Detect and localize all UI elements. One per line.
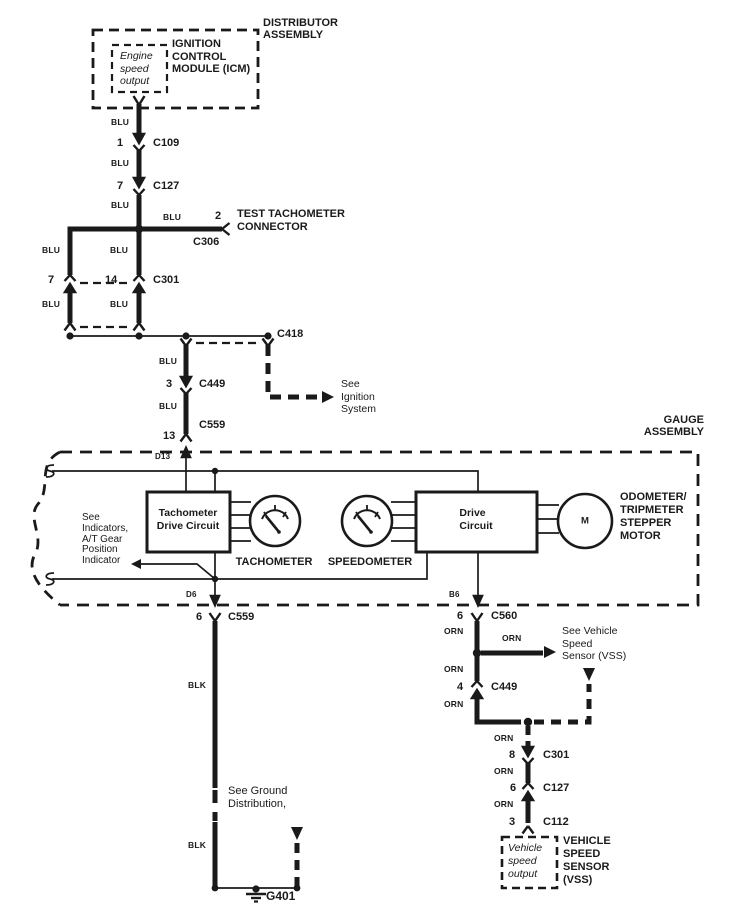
drive-to-motor-links <box>537 505 559 533</box>
connector-c301-right-icon <box>523 747 534 764</box>
junction-bus-c418 <box>264 332 271 339</box>
ground-g401-label: G401 <box>266 889 295 903</box>
tachometer-needle-icon <box>262 505 288 534</box>
indicator-branch-line <box>140 564 215 579</box>
tach-drive-to-gauge-links <box>230 502 251 541</box>
icm-line3: MODULE (ICM) <box>172 63 250 76</box>
stepper-line3: STEPPER <box>620 517 687 530</box>
vss-line2: SPEED <box>563 848 611 861</box>
icm-label: IGNITION CONTROL MODULE (ICM) <box>172 38 250 76</box>
pin-c559-bottom: 6 <box>196 611 202 623</box>
connector-name-c301-left: C301 <box>153 274 179 286</box>
pin-c301-7: 7 <box>48 274 54 286</box>
see-indicators-arrow-icon <box>131 559 141 569</box>
gauge-needle-icons <box>262 505 380 534</box>
wire-color-blk-1: BLK <box>188 680 206 690</box>
pin-c109: 1 <box>117 137 123 149</box>
engine-speed-output-label: Engine speed output <box>120 50 153 88</box>
speedometer-label: SPEEDOMETER <box>328 556 412 568</box>
icm-line1: IGNITION <box>172 38 250 51</box>
wire-color-blu-3: BLU <box>111 200 129 210</box>
speedo-to-drive-links <box>391 502 416 541</box>
drive-circuit-label: Drive Circuit <box>459 507 492 532</box>
vss-line4: (VSS) <box>563 874 611 887</box>
connector-c449-left-icon <box>181 377 192 394</box>
connector-c301-pin14-icon <box>134 275 145 292</box>
connector-c109-icon <box>134 134 145 151</box>
test-tach-line1: TEST TACHOMETER <box>237 208 345 221</box>
speedometer-needle-icon <box>354 505 380 534</box>
wire-color-blu-5: BLU <box>42 245 60 255</box>
pin-c449-left: 3 <box>166 378 172 390</box>
pin-c301-14: 14 <box>105 274 117 286</box>
wiring-diagram: DISTRIBUTOR ASSEMBLY IGNITION CONTROL MO… <box>0 0 747 920</box>
wire-color-blu-8: BLU <box>110 299 128 309</box>
diagram-graphics <box>0 0 747 920</box>
see-ignition-line1: See <box>341 378 376 391</box>
wire-dashed-to-ignition-system <box>268 345 321 397</box>
d13-arrow-icon <box>182 448 190 457</box>
wire-orn-c449-elbow <box>477 698 521 722</box>
connector-name-c449-right: C449 <box>491 681 517 693</box>
junction-bus-2 <box>135 332 142 339</box>
test-tachometer-terminal-icon <box>222 223 230 235</box>
vss-line1: VEHICLE <box>563 835 611 848</box>
junction-test-connector <box>135 225 143 233</box>
vss-return-arrow-icon <box>583 668 595 681</box>
vss-output-line1: Vehicle <box>508 842 542 855</box>
wire-color-blu-4: BLU <box>163 212 181 222</box>
dashed-links <box>80 283 260 343</box>
pin-c127-top: 7 <box>117 180 123 192</box>
pin-c112: 3 <box>509 816 515 828</box>
see-vss-line2: Speed <box>562 638 626 651</box>
connector-name-c301-right: C301 <box>543 749 569 761</box>
junction-vss-return <box>524 718 532 726</box>
wire-color-orn-2: ORN <box>502 633 522 643</box>
wire-color-blu-6: BLU <box>110 245 128 255</box>
see-ignition-arrow-icon <box>322 391 334 403</box>
wire-end-flare-pin7-icon <box>65 323 76 331</box>
connector-name-c306: C306 <box>193 236 219 248</box>
gauge-assembly-label: GAUGE ASSEMBLY <box>600 415 704 438</box>
thin-lines <box>46 336 559 888</box>
wire-color-blu-9: BLU <box>159 356 177 366</box>
vss-output-line2: speed <box>508 855 542 868</box>
drive-line2: Circuit <box>459 520 492 533</box>
icm-output-terminal-icon <box>134 96 145 105</box>
wire-color-blu-2: BLU <box>111 158 129 168</box>
vss-output-line3: output <box>508 868 542 881</box>
wire-color-blu-7: BLU <box>42 299 60 309</box>
wire-start-flare-ignition-icon <box>263 339 274 347</box>
connector-name-c559-top: C559 <box>199 419 225 431</box>
stepper-line4: MOTOR <box>620 530 687 543</box>
pin-c301-right: 8 <box>509 749 515 761</box>
tachometer-drive-circuit-label: Tachometer Drive Circuit <box>148 507 228 532</box>
engine-line1: Engine <box>120 50 153 63</box>
junction-vss-note <box>473 649 481 657</box>
see-ground-note: See Ground Distribution, <box>228 785 287 810</box>
gauge-assembly-box-wavy-edge <box>32 452 60 605</box>
connector-c127-top-icon <box>134 178 145 195</box>
pin-c559-top: 13 <box>163 430 175 442</box>
gauge-top-rail <box>52 471 478 492</box>
wire-color-orn-1: ORN <box>444 626 464 636</box>
ground-return-arrow-icon <box>291 827 303 840</box>
drive-line1: Drive <box>459 507 492 520</box>
tach-drive-line1: Tachometer <box>148 507 228 520</box>
stepper-line2: TRIPMETER <box>620 504 687 517</box>
see-ground-line2: Distribution, <box>228 798 287 811</box>
vss-label: VEHICLE SPEED SENSOR (VSS) <box>563 835 611 887</box>
wire-blu-left-branch <box>70 229 141 275</box>
junction-bus-3 <box>182 332 189 339</box>
connector-c449-right-icon <box>472 681 483 698</box>
connector-c560-icon <box>472 613 483 621</box>
junction-ground-left <box>212 885 219 892</box>
connector-name-c560: C560 <box>491 610 517 622</box>
see-vss-note: See Vehicle Speed Sensor (VSS) <box>562 625 626 663</box>
connector-name-c449-left: C449 <box>199 378 225 390</box>
connector-c112-icon <box>523 826 534 834</box>
tach-drive-line2: Drive Circuit <box>148 520 228 533</box>
distributor-assembly-line1: DISTRIBUTOR <box>263 18 338 30</box>
connector-c559-top-icon <box>181 434 192 442</box>
pin-c560: 6 <box>457 610 463 622</box>
distributor-assembly-line2: ASSEMBLY <box>263 30 338 42</box>
connector-name-c418: C418 <box>277 328 303 340</box>
wire-color-orn-6: ORN <box>494 766 514 776</box>
icm-line2: CONTROL <box>172 51 250 64</box>
connector-name-c112: C112 <box>543 816 569 828</box>
see-ignition-line3: System <box>341 403 376 416</box>
tachometer-label: TACHOMETER <box>236 556 313 568</box>
connector-c127-right-icon <box>523 783 534 800</box>
connector-name-c109: C109 <box>153 137 179 149</box>
see-vss-arrow-icon <box>544 646 556 658</box>
wire-color-orn-4: ORN <box>444 699 464 709</box>
see-indicators-line5: Indicator <box>82 556 128 567</box>
wire-color-blk-2: BLK <box>188 840 206 850</box>
pin-c127-right: 6 <box>510 782 516 794</box>
wire-color-orn-7: ORN <box>494 799 514 809</box>
pin-c449-right: 4 <box>457 681 463 693</box>
junction-bottom-rail <box>212 576 218 582</box>
junction-bus-1 <box>66 332 73 339</box>
pin-c306: 2 <box>215 210 221 222</box>
connector-name-c127-top: C127 <box>153 180 179 192</box>
test-tachometer-connector-label: TEST TACHOMETER CONNECTOR <box>237 208 345 233</box>
engine-line3: output <box>120 75 153 88</box>
wire-color-orn-3: ORN <box>444 664 464 674</box>
see-ignition-note: See Ignition System <box>341 378 376 416</box>
gauge-assembly-line2: ASSEMBLY <box>600 427 704 439</box>
wire-start-flare-c449-icon <box>181 339 192 347</box>
wire-end-flare-pin14-icon <box>134 323 145 331</box>
engine-line2: speed <box>120 63 153 76</box>
wire-color-blu-10: BLU <box>159 401 177 411</box>
connector-symbols <box>65 96 534 834</box>
see-vss-line3: Sensor (VSS) <box>562 650 626 663</box>
motor-m-label: M <box>581 516 589 527</box>
connector-c301-pin7-icon <box>65 275 76 292</box>
see-vss-line1: See Vehicle <box>562 625 626 638</box>
terminal-d13: D13 <box>155 452 170 461</box>
vehicle-speed-output-label: Vehicle speed output <box>508 842 542 881</box>
wire-color-orn-5: ORN <box>494 733 514 743</box>
component-boxes <box>32 30 698 888</box>
see-indicators-note: See Indicators, A/T Gear Position Indica… <box>82 513 128 567</box>
wire-dashed-vss-return <box>534 684 589 722</box>
distributor-assembly-label: DISTRIBUTOR ASSEMBLY <box>263 18 338 41</box>
tachometer-gauge-circle <box>250 496 300 546</box>
see-ignition-line2: Ignition <box>341 391 376 404</box>
connector-name-c559-bottom: C559 <box>228 611 254 623</box>
test-tach-line2: CONNECTOR <box>237 221 345 234</box>
stepper-line1: ODOMETER/ <box>620 491 687 504</box>
stepper-motor-label: ODOMETER/ TRIPMETER STEPPER MOTOR <box>620 491 687 543</box>
vss-line3: SENSOR <box>563 861 611 874</box>
speedometer-gauge-circle <box>342 496 392 546</box>
terminal-d6: D6 <box>186 590 197 599</box>
terminal-b6: B6 <box>449 590 460 599</box>
wire-color-blu-1: BLU <box>111 117 129 127</box>
connector-name-c127-right: C127 <box>543 782 569 794</box>
connector-c559-bottom-icon <box>210 613 221 621</box>
see-indicators-line2: Indicators, <box>82 524 128 535</box>
junction-top-rail <box>212 468 218 474</box>
gauge-assembly-line1: GAUGE <box>600 415 704 427</box>
see-ground-line1: See Ground <box>228 785 287 798</box>
